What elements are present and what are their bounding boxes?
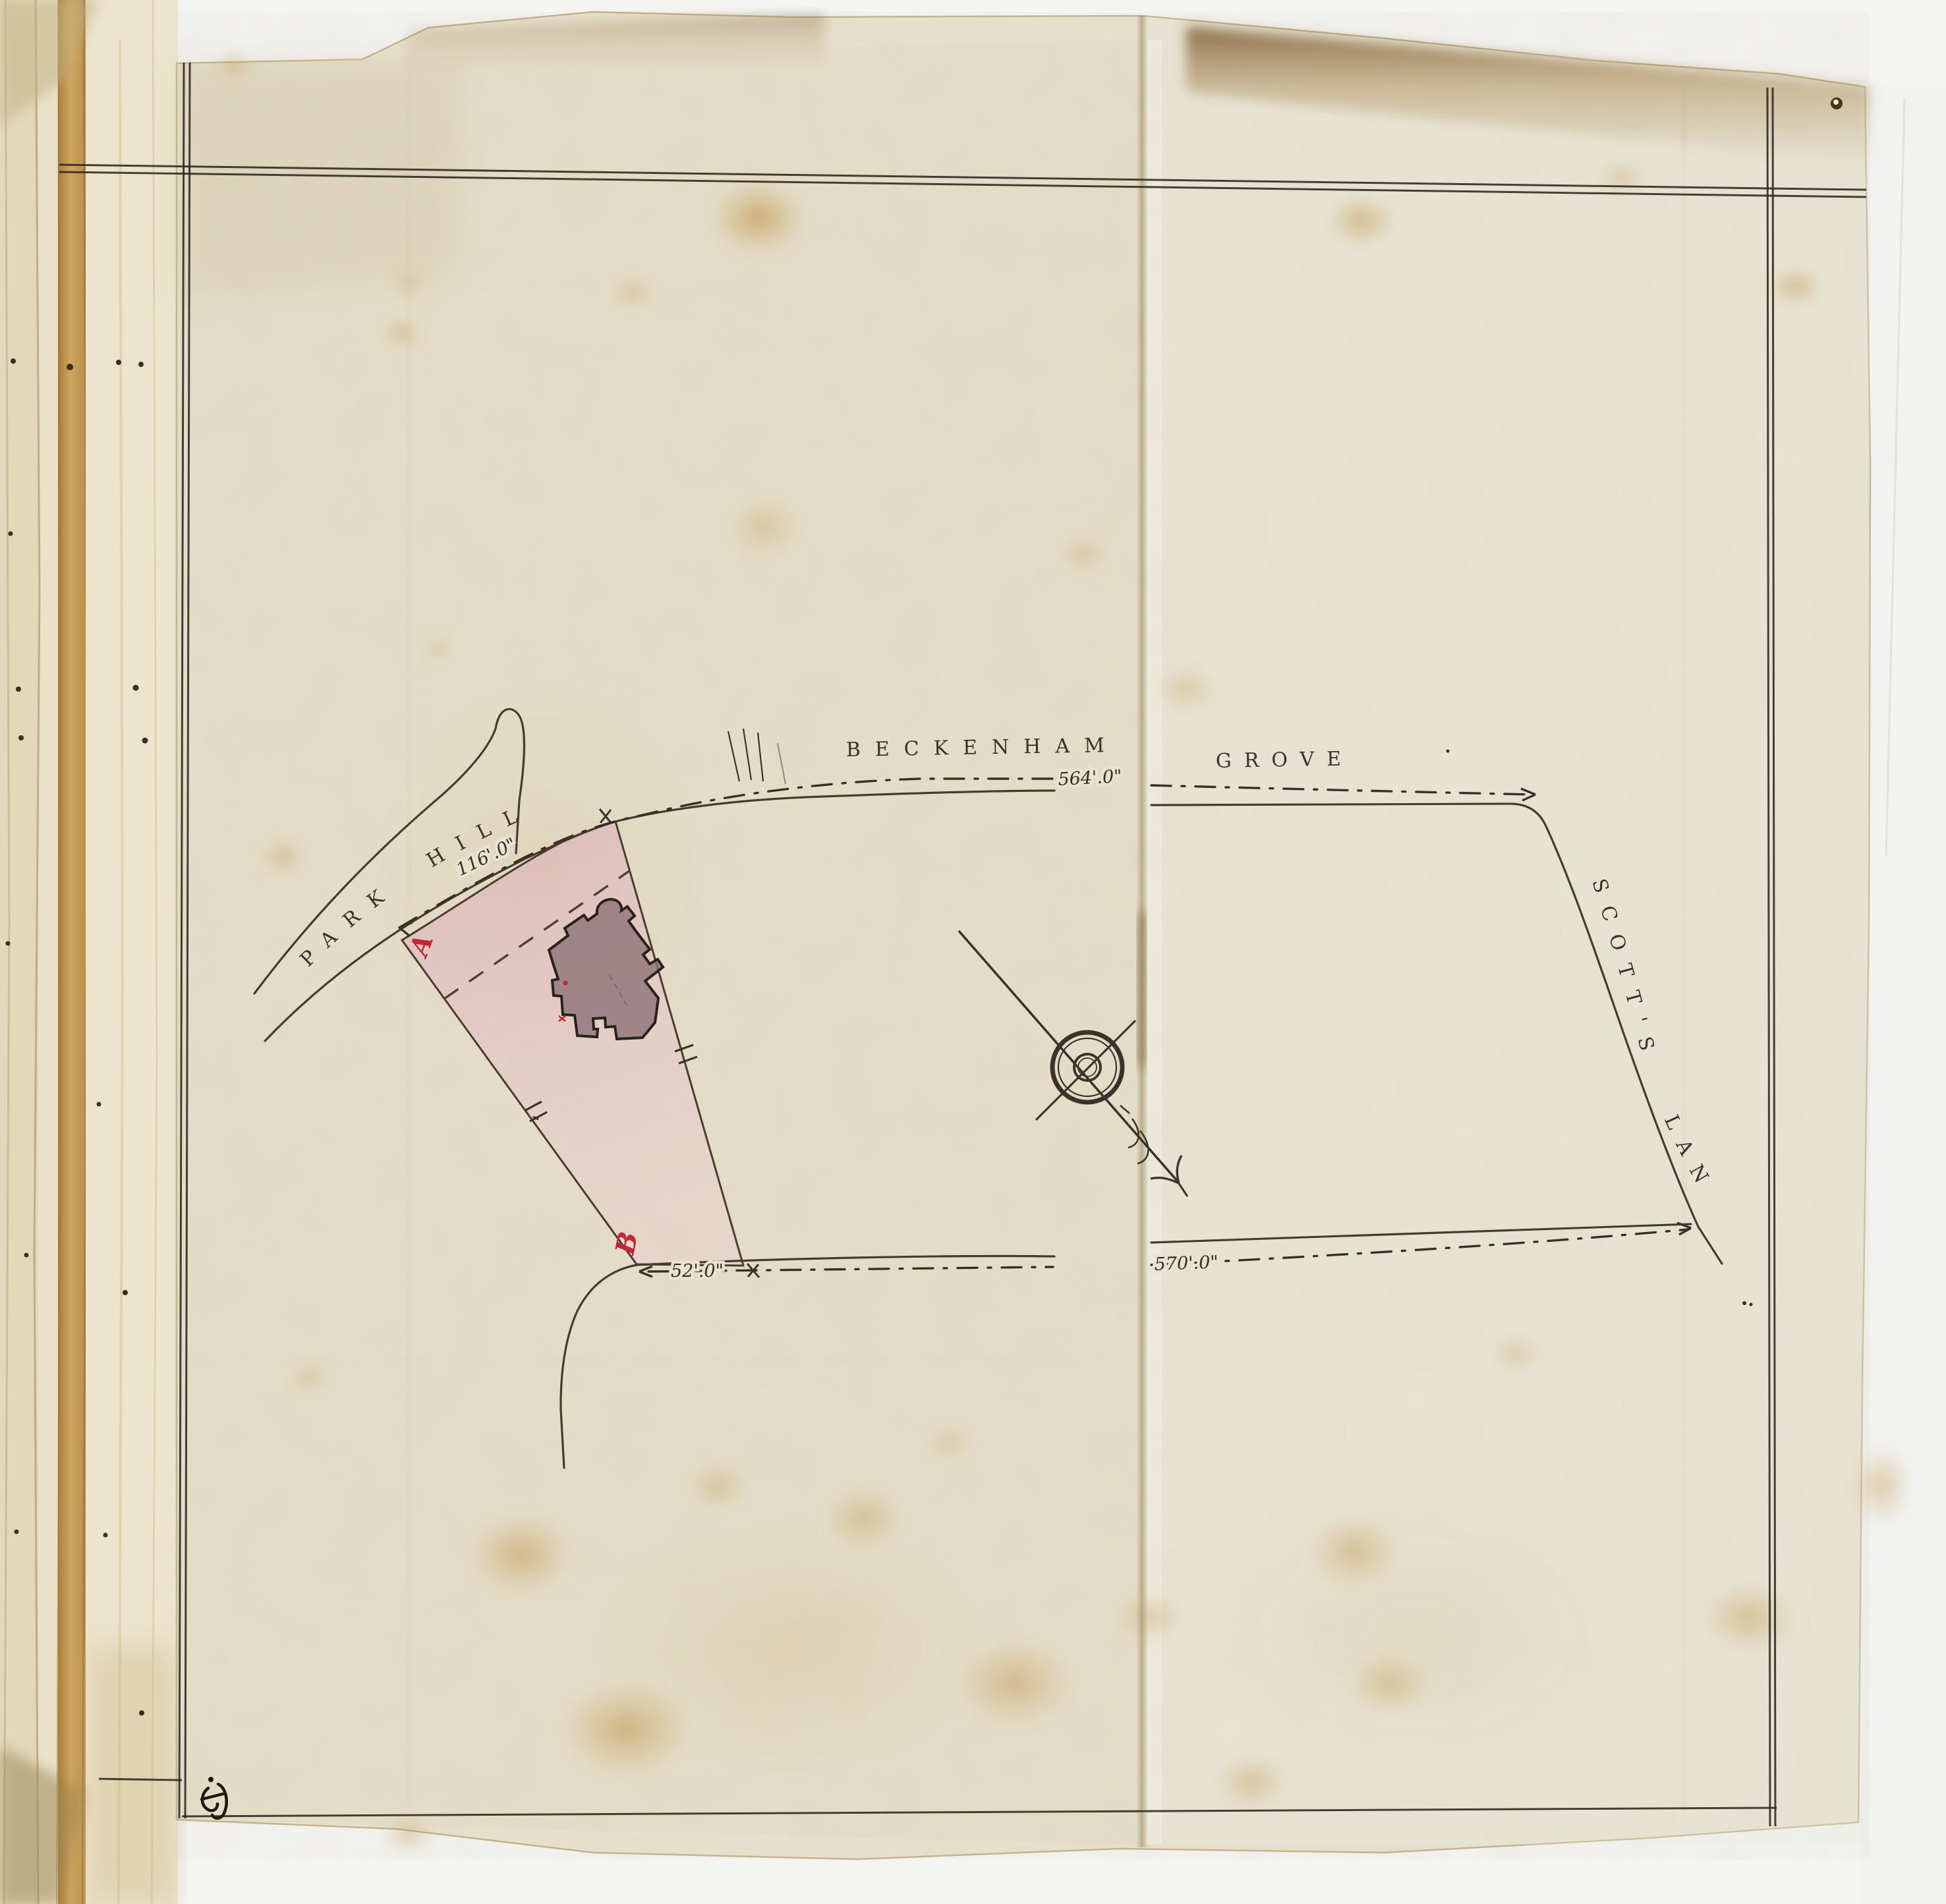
book-page-edges — [0, 0, 178, 1904]
label-beckenham: BECKENHAM — [846, 734, 1120, 762]
measurement-beckenham: 564'.0" — [1058, 766, 1123, 790]
label-grove: GROVE — [1216, 747, 1354, 773]
red-speck — [563, 981, 568, 986]
measurement-frontage: 52'.0" — [671, 1261, 724, 1281]
scanned-volume-page: PARK HILL BECKENHAM GROVE SCOTT'S LANE 5… — [0, 0, 1946, 1904]
pinhole — [1831, 98, 1843, 109]
measurement-south-road: 570'.0" — [1154, 1252, 1218, 1275]
survey-plan-canvas: PARK HILL BECKENHAM GROVE SCOTT'S LANE 5… — [0, 0, 1946, 1904]
